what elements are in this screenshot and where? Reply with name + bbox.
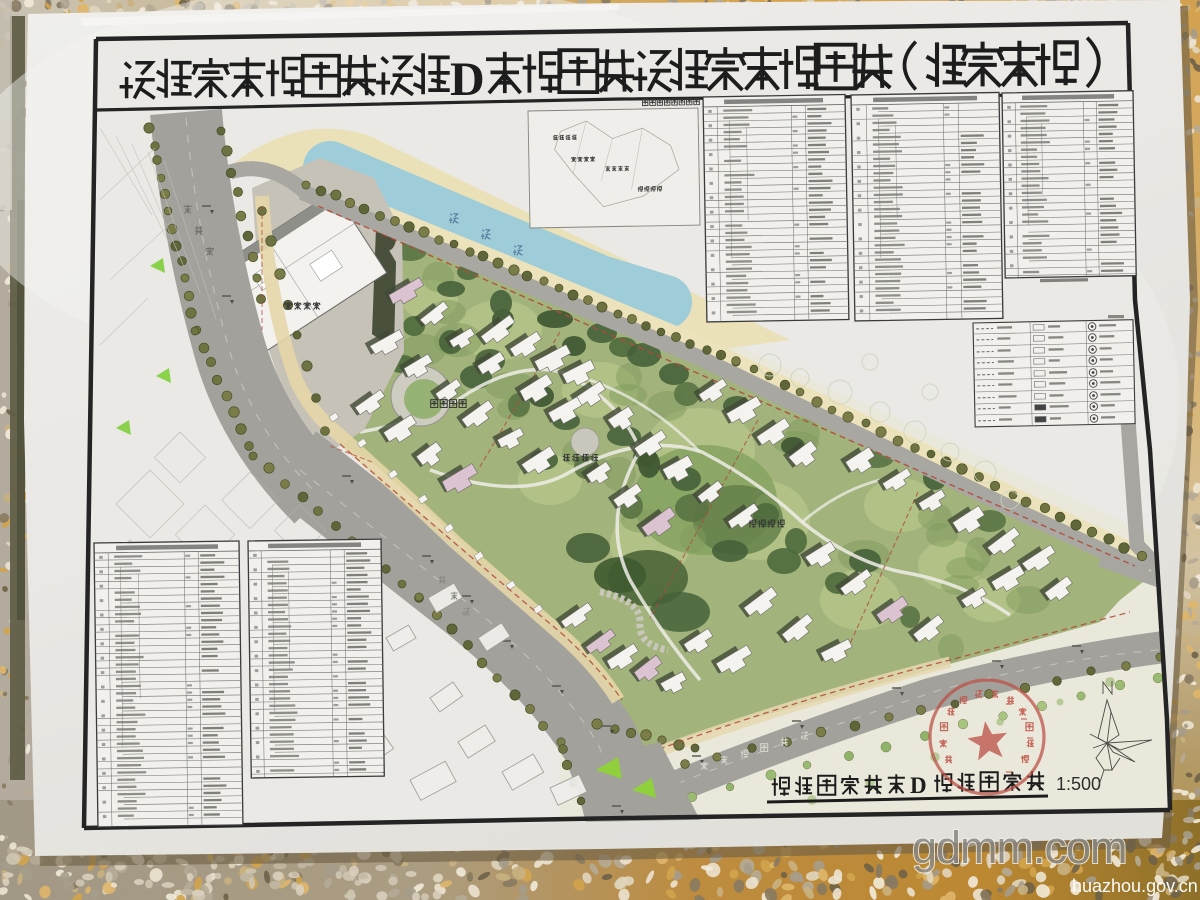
svg-text:gdmm.com: gdmm.com	[912, 822, 1127, 873]
svg-text:huazhou.gov.cn: huazhou.gov.cn	[1072, 876, 1198, 896]
svg-text:D: D	[910, 773, 927, 798]
svg-text:D: D	[450, 53, 485, 106]
svg-text:1:500: 1:500	[1056, 774, 1101, 794]
